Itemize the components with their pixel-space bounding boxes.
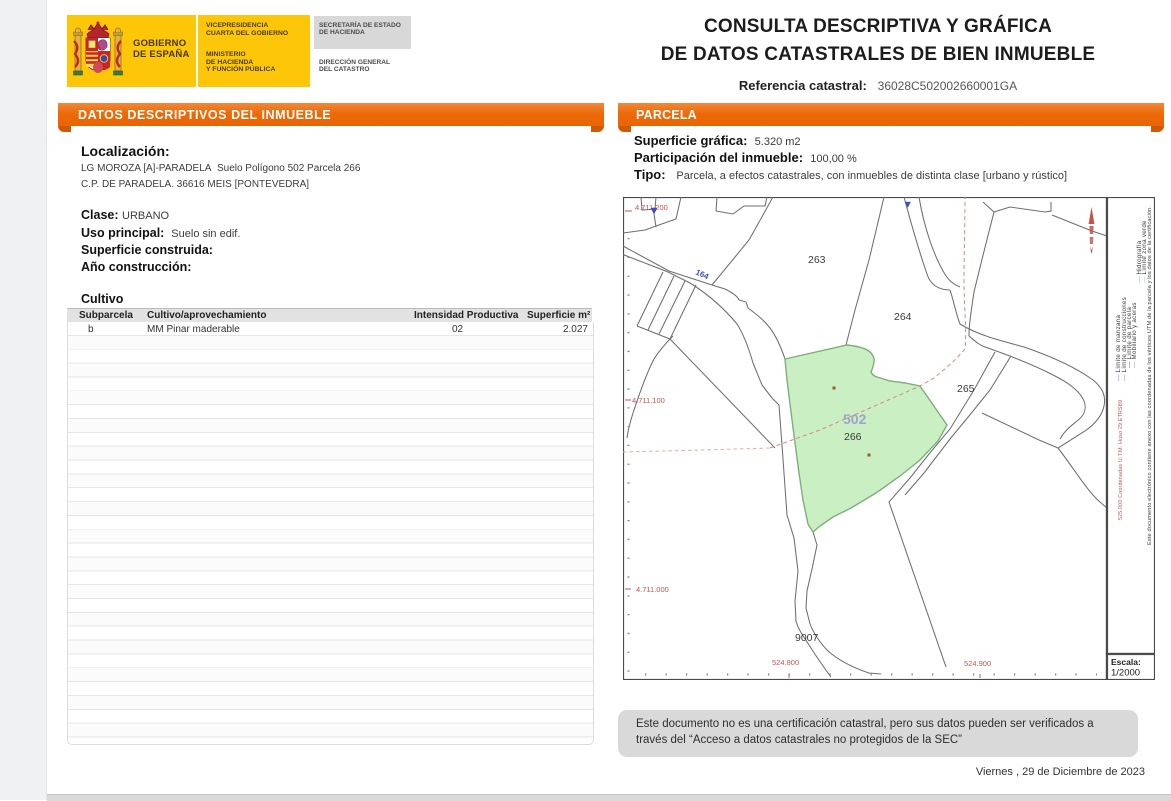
svg-text:263: 263 xyxy=(808,254,826,266)
svg-text:524.900: 524.900 xyxy=(964,659,991,668)
svg-text:4.711.100: 4.711.100 xyxy=(632,396,665,405)
svg-text:266: 266 xyxy=(844,431,862,443)
svg-text:9007: 9007 xyxy=(795,632,819,644)
svg-text:Escala:: Escala: xyxy=(1111,657,1141,667)
svg-text:1/2000: 1/2000 xyxy=(1111,668,1140,679)
svg-text:524.800: 524.800 xyxy=(772,658,799,667)
svg-text:502: 502 xyxy=(843,411,867,427)
svg-text:Este documento electrónico con: Este documento electrónico contiene anex… xyxy=(1147,206,1153,545)
svg-text:― Mobiliario y aceras: ― Mobiliario y aceras xyxy=(1131,302,1138,368)
svg-text:4.711.000: 4.711.000 xyxy=(636,585,669,594)
svg-text:264: 264 xyxy=(894,311,912,323)
svg-text:265: 265 xyxy=(957,383,975,395)
svg-text:525.000 Coordenadas U.T.M. Hus: 525.000 Coordenadas U.T.M. Huso 29 ETRS8… xyxy=(1118,400,1124,520)
svg-text:4.711.200: 4.711.200 xyxy=(635,203,668,212)
